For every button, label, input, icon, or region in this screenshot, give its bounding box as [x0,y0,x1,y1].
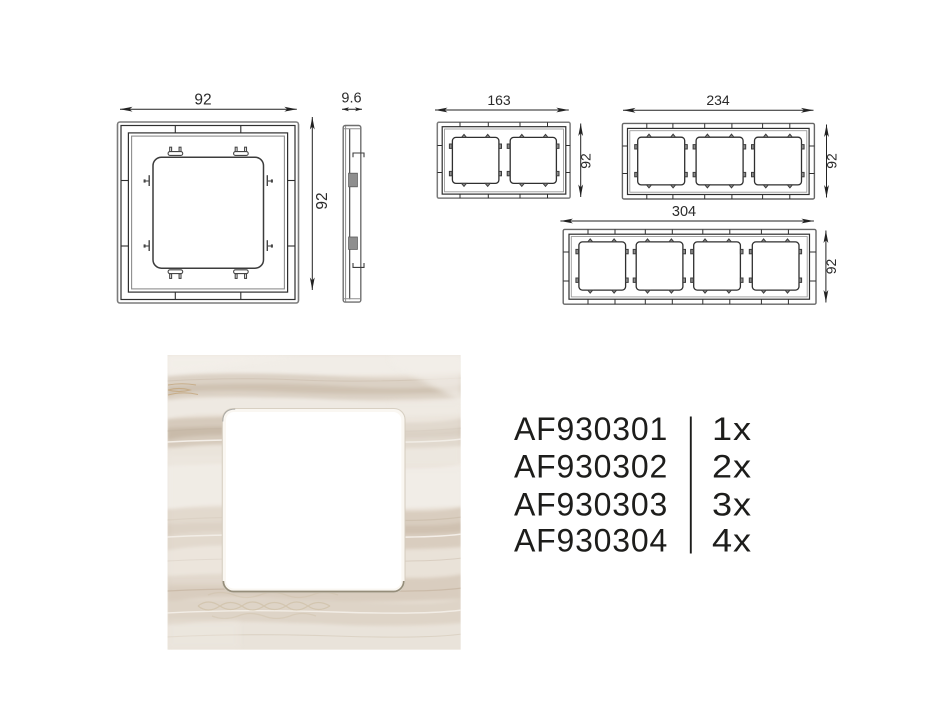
svg-text:1x: 1x [712,411,752,447]
svg-text:9.6: 9.6 [341,91,361,107]
svg-text:92: 92 [823,259,839,275]
svg-text:92: 92 [194,92,211,109]
svg-text:4x: 4x [712,523,752,559]
svg-text:92: 92 [578,153,594,169]
svg-text:234: 234 [706,92,730,108]
svg-text:AF930304: AF930304 [514,523,668,559]
svg-text:92: 92 [314,192,331,209]
svg-text:AF930302: AF930302 [514,448,668,484]
svg-text:AF930301: AF930301 [514,411,668,447]
svg-text:92: 92 [824,153,840,169]
svg-text:2x: 2x [712,448,752,484]
svg-text:3x: 3x [712,487,752,523]
svg-text:AF930303: AF930303 [514,487,668,523]
svg-text:304: 304 [672,204,696,220]
svg-text:163: 163 [487,92,511,108]
